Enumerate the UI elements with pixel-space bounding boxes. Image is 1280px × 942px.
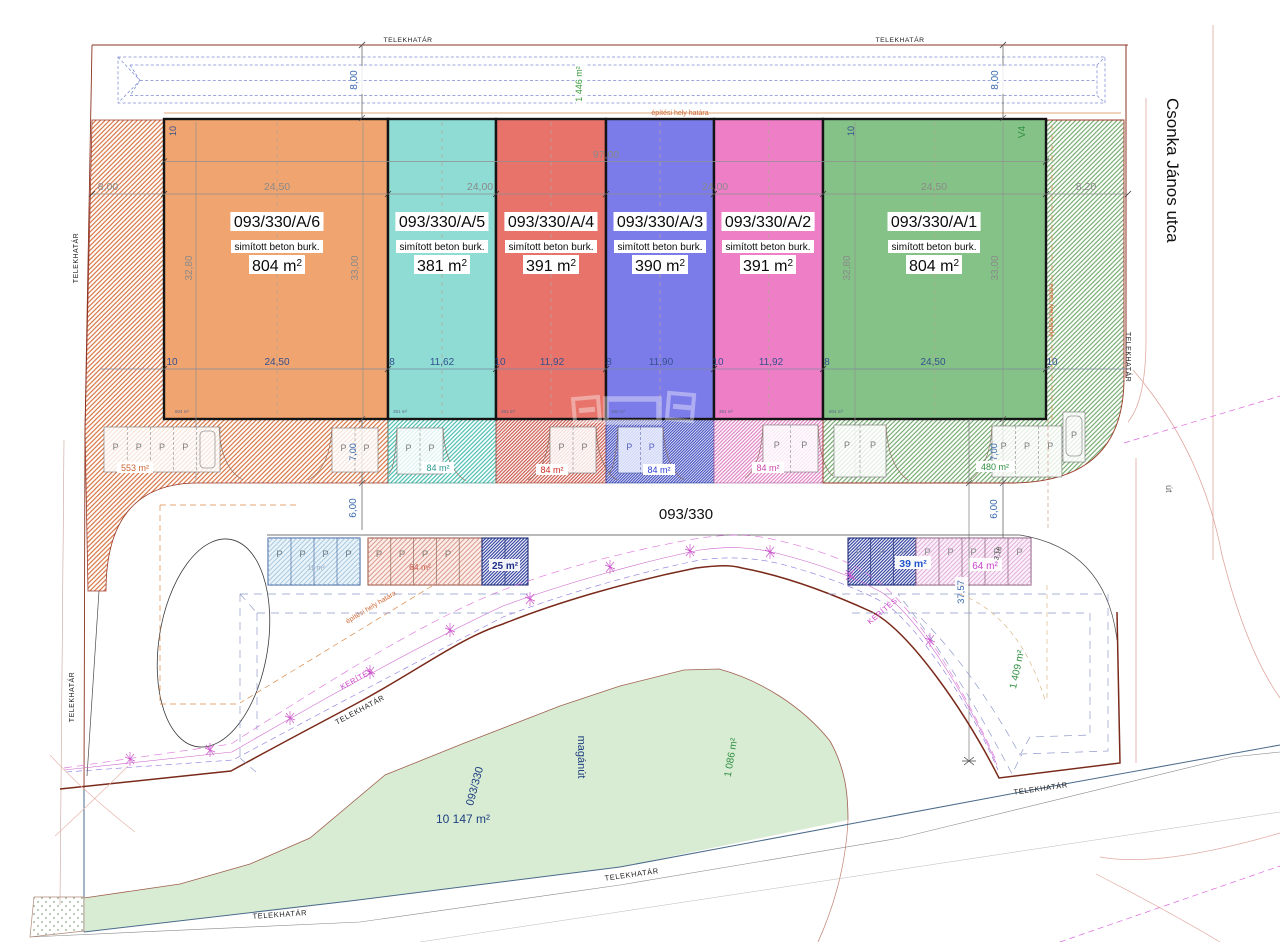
svg-text:39 m²: 39 m² xyxy=(899,558,927,570)
svg-text:P: P xyxy=(870,440,876,450)
svg-text:24,50: 24,50 xyxy=(921,181,947,193)
svg-text:P: P xyxy=(159,442,165,452)
svg-text:24,50: 24,50 xyxy=(920,357,945,368)
svg-text:84 m²: 84 m² xyxy=(426,463,449,473)
svg-text:1 446 m²: 1 446 m² xyxy=(574,66,584,102)
svg-text:V4: V4 xyxy=(1017,125,1028,138)
svg-text:804 m²: 804 m² xyxy=(175,409,190,414)
svg-text:simított beton burk.: simított beton burk. xyxy=(234,242,319,253)
svg-text:093/330/A/5: 093/330/A/5 xyxy=(399,214,485,231)
svg-text:8,00: 8,00 xyxy=(98,181,119,193)
svg-text:37,57: 37,57 xyxy=(956,580,967,604)
svg-text:11,92: 11,92 xyxy=(540,357,565,368)
svg-text:P: P xyxy=(626,442,632,452)
svg-text:P: P xyxy=(1024,441,1030,451)
svg-text:391 m²: 391 m² xyxy=(719,409,734,414)
svg-text:P: P xyxy=(856,547,862,558)
svg-text:24,00: 24,00 xyxy=(467,181,493,193)
svg-text:381 m²: 381 m² xyxy=(393,409,408,414)
svg-text:6,00: 6,00 xyxy=(989,499,1000,519)
svg-text:391 m2: 391 m2 xyxy=(743,258,793,275)
svg-text:10: 10 xyxy=(166,357,178,368)
svg-text:P: P xyxy=(299,549,305,560)
svg-text:TELEKHATÁR: TELEKHATÁR xyxy=(383,35,432,44)
svg-text:P: P xyxy=(970,547,976,558)
svg-text:64 m²: 64 m² xyxy=(409,562,431,572)
svg-text:P: P xyxy=(422,549,428,560)
svg-text:8,00: 8,00 xyxy=(990,70,1001,90)
svg-text:6,00: 6,00 xyxy=(348,498,359,518)
svg-text:P: P xyxy=(1016,547,1022,558)
svg-text:093/330/A/6: 093/330/A/6 xyxy=(234,214,320,231)
svg-text:P: P xyxy=(774,440,780,450)
svg-text:P: P xyxy=(376,549,382,560)
svg-text:33,00: 33,00 xyxy=(350,255,361,280)
svg-text:simított beton burk.: simított beton burk. xyxy=(891,242,976,253)
svg-text:804 m2: 804 m2 xyxy=(909,258,959,275)
svg-text:P: P xyxy=(1071,430,1077,440)
svg-text:TELEKHATÁR: TELEKHATÁR xyxy=(67,672,76,722)
svg-text:093/330: 093/330 xyxy=(659,506,713,523)
svg-text:24,50: 24,50 xyxy=(264,357,289,368)
svg-text:P: P xyxy=(322,549,328,560)
svg-text:093/330/A/3: 093/330/A/3 xyxy=(617,214,703,231)
svg-text:simított beton burk.: simított beton burk. xyxy=(725,242,810,253)
svg-text:P: P xyxy=(581,442,587,452)
svg-text:381 m2: 381 m2 xyxy=(417,258,467,275)
svg-text:P: P xyxy=(947,547,953,558)
svg-text:11 m²: 11 m² xyxy=(307,565,325,572)
svg-text:8: 8 xyxy=(606,357,612,368)
svg-text:390 m²: 390 m² xyxy=(611,409,626,414)
svg-text:P: P xyxy=(276,549,282,560)
svg-text:553 m²: 553 m² xyxy=(121,463,149,473)
svg-text:P: P xyxy=(801,440,807,450)
svg-text:32,80: 32,80 xyxy=(184,255,195,280)
svg-text:8,00: 8,00 xyxy=(349,70,360,90)
svg-text:P: P xyxy=(405,443,411,453)
svg-text:24,00: 24,00 xyxy=(702,181,728,193)
svg-text:84 m²: 84 m² xyxy=(756,463,779,473)
svg-text:P: P xyxy=(136,442,142,452)
svg-text:64 m²: 64 m² xyxy=(972,561,998,572)
svg-text:804 m²: 804 m² xyxy=(829,409,844,414)
svg-text:P: P xyxy=(182,442,188,452)
svg-text:804 m2: 804 m2 xyxy=(252,258,302,275)
svg-text:7,00: 7,00 xyxy=(989,443,999,461)
svg-text:P: P xyxy=(340,443,346,453)
svg-text:építési hely határa: építési hely határa xyxy=(651,110,708,117)
svg-text:480 m²: 480 m² xyxy=(981,462,1009,472)
svg-text:simított beton burk.: simított beton burk. xyxy=(508,242,593,253)
svg-text:P: P xyxy=(428,443,434,453)
svg-text:8,20: 8,20 xyxy=(1076,181,1097,193)
svg-text:84 m²: 84 m² xyxy=(647,465,670,475)
svg-text:P: P xyxy=(558,442,564,452)
svg-text:P: P xyxy=(649,442,655,452)
svg-text:P: P xyxy=(844,440,850,450)
svg-text:10: 10 xyxy=(168,126,178,136)
svg-text:10 147 m²: 10 147 m² xyxy=(436,812,490,826)
svg-text:390 m2: 390 m2 xyxy=(635,258,685,275)
svg-text:építési hely határa: építési hely határa xyxy=(1048,283,1055,337)
svg-text:magánút: magánút xyxy=(575,736,587,779)
svg-text:97,00: 97,00 xyxy=(593,149,619,161)
svg-text:P: P xyxy=(113,442,119,452)
svg-text:P: P xyxy=(879,547,885,558)
svg-text:24,50: 24,50 xyxy=(264,181,290,193)
svg-text:11,62: 11,62 xyxy=(430,357,455,368)
svg-text:093/330/A/1: 093/330/A/1 xyxy=(891,214,977,231)
svg-text:10: 10 xyxy=(712,357,724,368)
svg-text:simított beton burk.: simított beton burk. xyxy=(617,242,702,253)
svg-text:093/330/A/2: 093/330/A/2 xyxy=(725,214,811,231)
svg-text:út: út xyxy=(1164,485,1174,493)
svg-text:P: P xyxy=(399,549,405,560)
svg-text:32,80: 32,80 xyxy=(842,255,853,280)
svg-text:11,92: 11,92 xyxy=(759,357,784,368)
svg-text:391 m²: 391 m² xyxy=(501,409,516,414)
svg-text:simított beton burk.: simított beton burk. xyxy=(399,242,484,253)
svg-text:7,00: 7,00 xyxy=(348,443,358,461)
svg-text:84 m²: 84 m² xyxy=(540,465,563,475)
svg-text:P: P xyxy=(363,443,369,453)
svg-text:P: P xyxy=(345,549,351,560)
svg-text:391 m2: 391 m2 xyxy=(526,258,576,275)
svg-text:10: 10 xyxy=(846,126,856,136)
svg-text:25 m²: 25 m² xyxy=(492,561,519,572)
svg-text:10: 10 xyxy=(494,357,506,368)
svg-text:TELEKHATÁR: TELEKHATÁR xyxy=(875,35,924,44)
svg-text:Csonka János utca: Csonka János utca xyxy=(1163,98,1182,243)
svg-text:P: P xyxy=(445,549,451,560)
svg-text:P: P xyxy=(1001,441,1007,451)
svg-text:11,90: 11,90 xyxy=(649,357,674,368)
svg-text:TELEKHATÁR: TELEKHATÁR xyxy=(1124,332,1133,382)
svg-text:33,00: 33,00 xyxy=(990,255,1001,280)
svg-text:093/330/A/4: 093/330/A/4 xyxy=(508,214,594,231)
svg-text:TELEKHATÁR: TELEKHATÁR xyxy=(71,233,80,283)
